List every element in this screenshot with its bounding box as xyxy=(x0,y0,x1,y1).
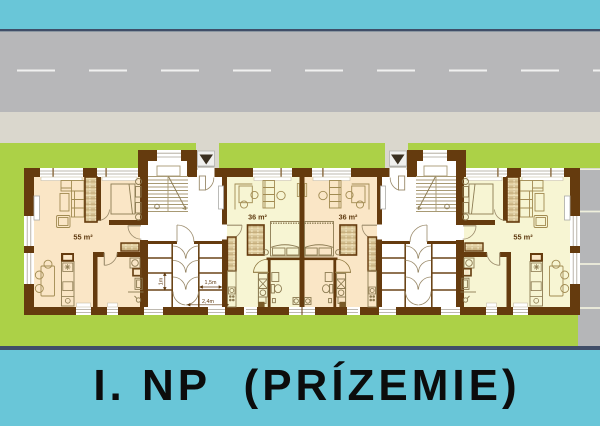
svg-text:I. NP (PRÍZEMIE): I. NP (PRÍZEMIE) xyxy=(93,360,520,410)
svg-text:55 m²: 55 m² xyxy=(513,233,533,242)
svg-text:36 m²: 36 m² xyxy=(339,213,358,222)
svg-text:1,5m: 1,5m xyxy=(205,280,217,286)
svg-text:2,4m: 2,4m xyxy=(202,299,214,305)
svg-text:1m: 1m xyxy=(159,277,165,285)
svg-text:55 m²: 55 m² xyxy=(73,233,93,242)
svg-text:36 m²: 36 m² xyxy=(248,213,267,222)
